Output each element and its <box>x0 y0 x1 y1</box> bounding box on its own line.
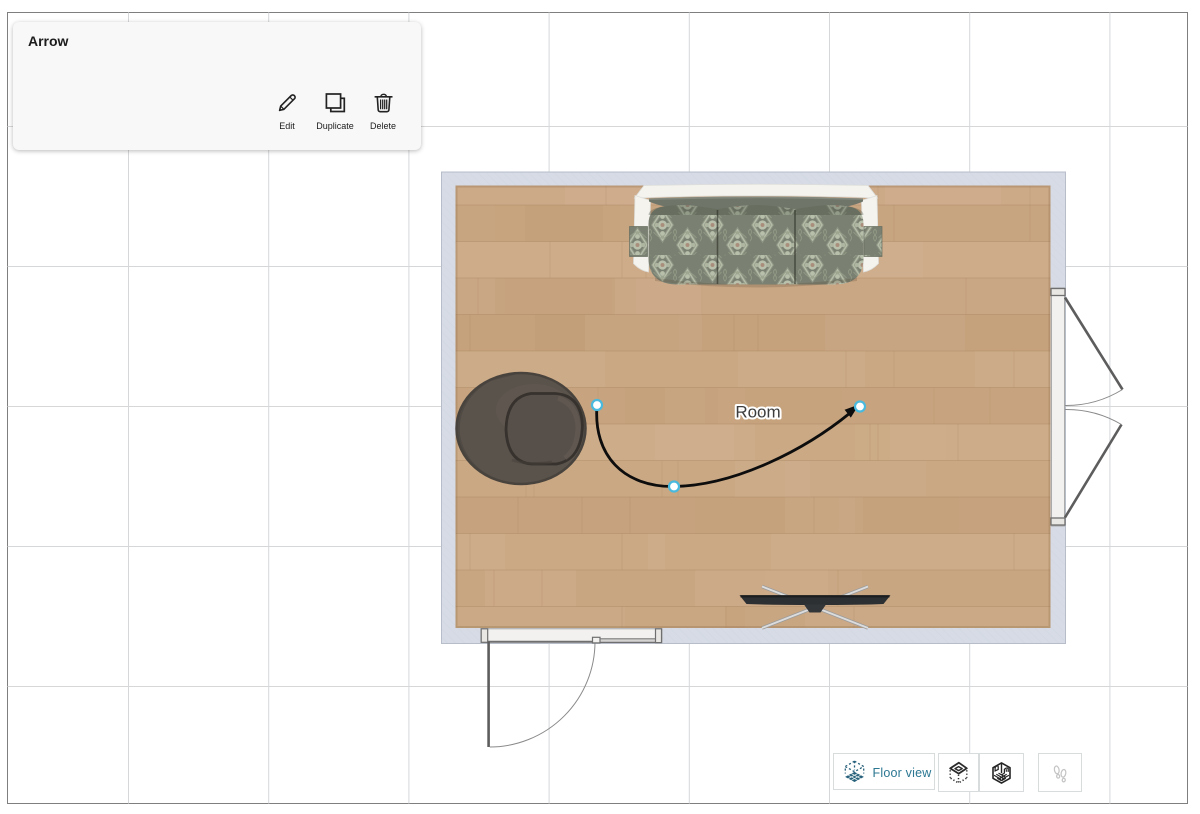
svg-text:Room: Room <box>735 403 780 422</box>
